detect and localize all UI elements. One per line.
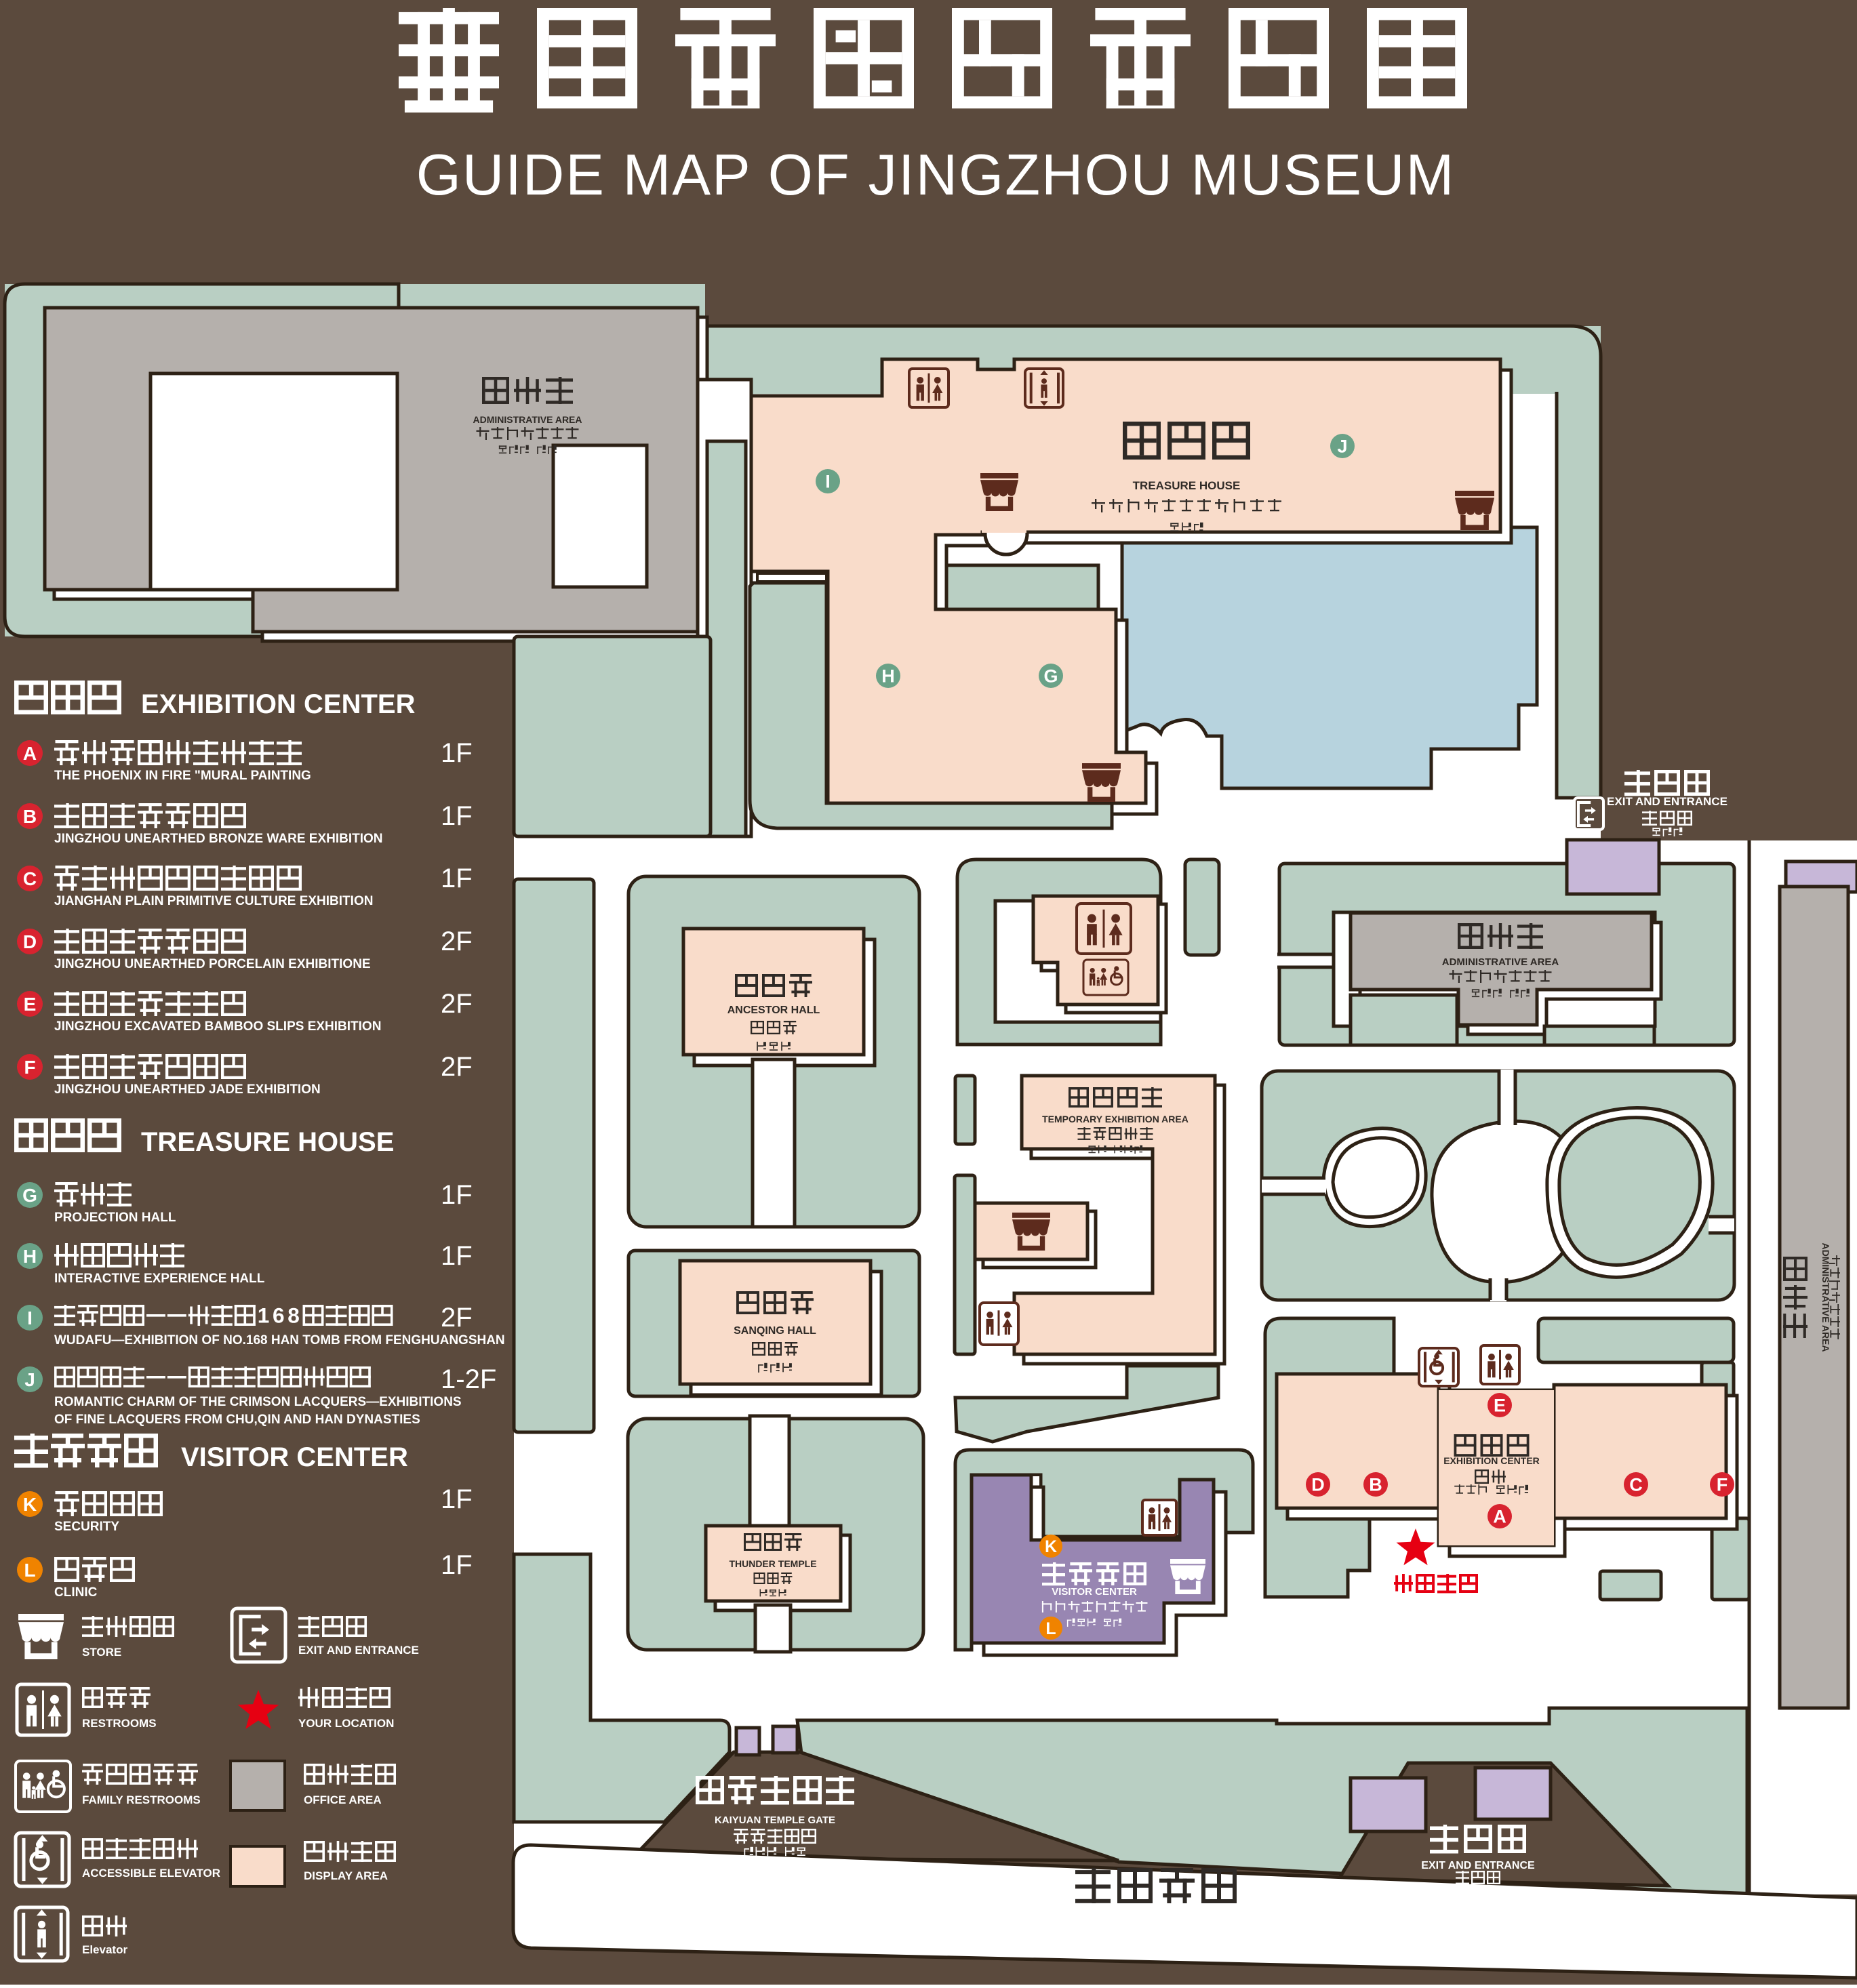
svg-text:RESTROOMS: RESTROOMS bbox=[82, 1717, 157, 1730]
svg-text:J: J bbox=[1337, 437, 1347, 457]
svg-text:ACCESSIBLE ELEVATOR: ACCESSIBLE ELEVATOR bbox=[82, 1867, 220, 1880]
svg-text:C: C bbox=[23, 868, 37, 889]
svg-text:TREASURE HOUSE: TREASURE HOUSE bbox=[141, 1127, 394, 1157]
svg-text:OFFICE AREA: OFFICE AREA bbox=[304, 1793, 382, 1806]
svg-text:ADMINISTRATIVE AREA: ADMINISTRATIVE AREA bbox=[1442, 956, 1559, 968]
svg-text:6: 6 bbox=[273, 1303, 285, 1328]
svg-text:JINGZHOU UNEARTHED JADE EXHIBI: JINGZHOU UNEARTHED JADE EXHIBITION bbox=[54, 1082, 321, 1097]
svg-text:SECURITY: SECURITY bbox=[54, 1520, 119, 1534]
svg-text:PROJECTION HALL: PROJECTION HALL bbox=[54, 1211, 176, 1225]
svg-text:CLINIC: CLINIC bbox=[54, 1585, 98, 1600]
svg-text:STORE: STORE bbox=[82, 1646, 121, 1659]
svg-text:ANCESTOR HALL: ANCESTOR HALL bbox=[727, 1005, 820, 1016]
svg-text:ROMANTIC CHARM OF THE CRIMSON: ROMANTIC CHARM OF THE CRIMSON LACQUERS—E… bbox=[54, 1395, 462, 1409]
svg-text:2F: 2F bbox=[441, 1303, 473, 1333]
svg-text:WUDAFU—EXHIBITION OF NO.168 HA: WUDAFU—EXHIBITION OF NO.168 HAN TOMB FRO… bbox=[54, 1333, 505, 1347]
svg-text:H: H bbox=[881, 666, 895, 687]
svg-text:ADMINISTRATIVE AREA: ADMINISTRATIVE AREA bbox=[1820, 1243, 1831, 1352]
svg-text:FAMILY RESTROOMS: FAMILY RESTROOMS bbox=[82, 1793, 201, 1806]
svg-text:E: E bbox=[1494, 1396, 1506, 1416]
svg-text:1: 1 bbox=[258, 1303, 270, 1328]
svg-text:2F: 2F bbox=[441, 927, 473, 956]
svg-text:EXIT AND ENTRANCE: EXIT AND ENTRANCE bbox=[1607, 795, 1728, 808]
svg-text:K: K bbox=[1045, 1537, 1057, 1556]
svg-text:JIANGHAN PLAIN PRIMITIVE CULTU: JIANGHAN PLAIN PRIMITIVE CULTURE EXHIBIT… bbox=[54, 894, 373, 908]
svg-text:OF FINE LACQUERS FROM CHU,QIN: OF FINE LACQUERS FROM CHU,QIN AND HAN DY… bbox=[54, 1413, 420, 1427]
svg-text:C: C bbox=[1629, 1475, 1643, 1495]
svg-text:D: D bbox=[23, 931, 37, 952]
svg-text:EXHIBITION CENTER: EXHIBITION CENTER bbox=[141, 689, 416, 719]
svg-text:B: B bbox=[1369, 1475, 1382, 1495]
svg-text:VISITOR CENTER: VISITOR CENTER bbox=[181, 1442, 408, 1472]
svg-text:SANQING HALL: SANQING HALL bbox=[734, 1325, 816, 1337]
svg-text:G: G bbox=[22, 1185, 37, 1206]
svg-text:YOUR LOCATION: YOUR LOCATION bbox=[298, 1717, 394, 1730]
svg-text:1F: 1F bbox=[441, 738, 473, 768]
svg-text:I: I bbox=[27, 1307, 33, 1328]
svg-text:INTERACTIVE EXPERIENCE HALL: INTERACTIVE EXPERIENCE HALL bbox=[54, 1272, 265, 1286]
svg-text:TEMPORARY EXHIBITION AREA: TEMPORARY EXHIBITION AREA bbox=[1042, 1114, 1189, 1124]
svg-text:THUNDER TEMPLE: THUNDER TEMPLE bbox=[729, 1558, 816, 1569]
svg-text:1F: 1F bbox=[441, 1550, 473, 1580]
svg-text:EXIT AND ENTRANCE: EXIT AND ENTRANCE bbox=[1421, 1860, 1535, 1871]
svg-text:A: A bbox=[1493, 1507, 1506, 1527]
svg-text:Elevator: Elevator bbox=[82, 1943, 127, 1956]
svg-text:DISPLAY AREA: DISPLAY AREA bbox=[304, 1869, 388, 1882]
svg-text:2F: 2F bbox=[441, 989, 473, 1019]
svg-text:H: H bbox=[23, 1246, 37, 1267]
svg-text:K: K bbox=[23, 1494, 37, 1515]
svg-text:GUIDE MAP OF JINGZHOU MUSEUM: GUIDE MAP OF JINGZHOU MUSEUM bbox=[416, 143, 1456, 207]
svg-text:F: F bbox=[1717, 1475, 1728, 1495]
svg-text:EXIT AND ENTRANCE: EXIT AND ENTRANCE bbox=[298, 1644, 419, 1657]
svg-text:2F: 2F bbox=[441, 1052, 473, 1082]
svg-text:E: E bbox=[24, 994, 37, 1015]
svg-text:EXHIBITION CENTER: EXHIBITION CENTER bbox=[1443, 1455, 1540, 1466]
svg-text:G: G bbox=[1043, 666, 1058, 687]
svg-text:J: J bbox=[24, 1369, 35, 1390]
svg-text:F: F bbox=[24, 1057, 35, 1078]
svg-text:1-2F: 1-2F bbox=[441, 1364, 496, 1394]
svg-text:THE PHOENIX IN FIRE "MURAL PAI: THE PHOENIX IN FIRE "MURAL PAINTING bbox=[54, 769, 311, 783]
svg-text:1F: 1F bbox=[441, 1241, 473, 1271]
svg-text:1F: 1F bbox=[441, 801, 473, 831]
svg-text:D: D bbox=[1311, 1475, 1325, 1495]
svg-text:JINGZHOU UNEARTHED PORCELAIN E: JINGZHOU UNEARTHED PORCELAIN EXHIBITIONE bbox=[54, 957, 371, 971]
svg-text:TREASURE HOUSE: TREASURE HOUSE bbox=[1133, 479, 1241, 492]
svg-text:L: L bbox=[1045, 1619, 1056, 1638]
svg-text:A: A bbox=[23, 743, 37, 764]
svg-text:B: B bbox=[23, 806, 37, 827]
svg-text:VISITOR CENTER: VISITOR CENTER bbox=[1052, 1586, 1137, 1598]
svg-text:8: 8 bbox=[287, 1303, 300, 1328]
svg-text:I: I bbox=[825, 472, 831, 492]
svg-text:KAIYUAN TEMPLE GATE: KAIYUAN TEMPLE GATE bbox=[715, 1814, 835, 1826]
svg-text:JINGZHOU UNEARTHED BRONZE WARE: JINGZHOU UNEARTHED BRONZE WARE EXHIBITIO… bbox=[54, 832, 383, 846]
svg-text:ADMINISTRATIVE AREA: ADMINISTRATIVE AREA bbox=[473, 414, 582, 425]
svg-text:1F: 1F bbox=[441, 864, 473, 893]
svg-text:1F: 1F bbox=[441, 1484, 473, 1514]
svg-text:1F: 1F bbox=[441, 1180, 473, 1210]
svg-text:JINGZHOU EXCAVATED BAMBOO SLIP: JINGZHOU EXCAVATED BAMBOO SLIPS EXHIBITI… bbox=[54, 1019, 381, 1034]
svg-text:L: L bbox=[24, 1560, 35, 1581]
